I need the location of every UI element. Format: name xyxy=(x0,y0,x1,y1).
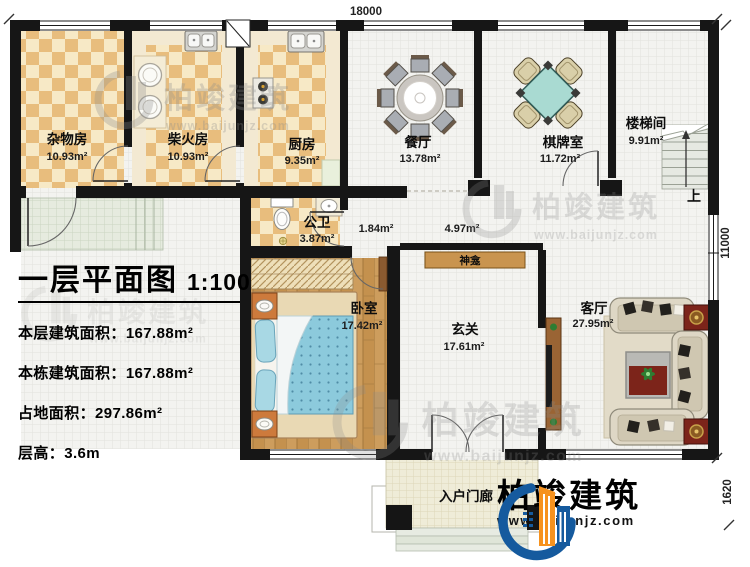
side-porch xyxy=(21,198,163,250)
window-top-6 xyxy=(628,20,700,31)
room-area-game: 11.72m² xyxy=(540,153,581,165)
room-area-foyer: 17.61m² xyxy=(444,341,485,353)
stat-floor-area: 本层建筑面积：167.88m² xyxy=(18,322,240,343)
dim-top-width: 18000 xyxy=(350,6,382,18)
cabinet-plant-top xyxy=(550,324,557,331)
nightstand-top xyxy=(252,293,277,319)
dim-right-height: 11000 xyxy=(720,227,732,258)
stat-floor-height: 层高：3.6m xyxy=(18,442,240,463)
stairs-up-label: 上 xyxy=(687,188,701,204)
title-block: 一层平面图 1:100 本层建筑面积：167.88m² 本栋建筑面积：167.8… xyxy=(18,255,240,463)
window-top-4 xyxy=(364,20,452,31)
room-label-living: 客厅 xyxy=(580,300,609,316)
mahjong-table-set xyxy=(511,55,584,130)
firewood-sink xyxy=(185,31,217,51)
plan-title-row: 一层平面图 1:100 xyxy=(18,255,240,303)
plan-scale: 1:100 xyxy=(187,269,251,296)
room-label-foyer: 玄关 xyxy=(452,321,479,337)
stat-building-area-label: 本栋建筑面积： xyxy=(18,365,126,382)
room-label-porch: 入户门廊 xyxy=(439,488,493,504)
window-top-3 xyxy=(268,20,336,31)
room-label-firewood: 柴火房 xyxy=(167,131,209,147)
sofa-right xyxy=(672,331,708,419)
living-room-set xyxy=(604,298,709,445)
shrine-label: 神龛 xyxy=(460,254,481,267)
stat-floor-area-value: 167.88m² xyxy=(126,325,193,342)
staircase xyxy=(662,124,708,189)
tv xyxy=(546,345,552,407)
logo-dot-column xyxy=(523,512,533,527)
room-label-stairwell: 楼梯间 xyxy=(626,115,667,131)
room-label-bedroom: 卧室 xyxy=(351,300,378,316)
floor-plan-image: 柏竣建筑 www.baijunjz.com xyxy=(0,0,750,567)
window-top-1 xyxy=(40,20,110,31)
window-right-hall xyxy=(708,215,719,300)
side-table-top xyxy=(684,305,709,330)
passage-area-small: 1.84m² xyxy=(359,223,394,235)
stat-floor-height-value: 3.6m xyxy=(64,445,100,462)
plan-title: 一层平面图 xyxy=(18,255,178,299)
bathroom-sink xyxy=(316,196,342,216)
window-bottom-living xyxy=(566,449,682,460)
logo-tower-orange xyxy=(539,486,555,546)
wardrobe xyxy=(251,259,353,289)
room-area-stairwell: 9.91m² xyxy=(629,135,664,147)
sofa-top xyxy=(610,298,694,333)
stat-floor-height-label: 层高： xyxy=(18,445,64,462)
window-top-5 xyxy=(498,20,584,31)
logo-tower-blue xyxy=(557,506,570,546)
stat-building-area: 本栋建筑面积：167.88m² xyxy=(18,362,240,383)
room-label-game: 棋牌室 xyxy=(543,134,584,150)
stat-building-area-value: 167.88m² xyxy=(126,365,193,382)
nightstand-bottom xyxy=(252,411,277,437)
room-area-storage: 10.93m² xyxy=(47,151,88,163)
room-label-kitchen: 厨房 xyxy=(289,136,316,152)
room-label-storage: 杂物房 xyxy=(47,131,88,147)
room-area-bedroom: 17.42m² xyxy=(342,320,383,332)
brand-logo-icon xyxy=(497,479,589,561)
kitchen-sink xyxy=(288,31,324,52)
floor-drain xyxy=(279,237,286,244)
dining-table-center xyxy=(415,93,425,103)
stat-floor-area-label: 本层建筑面积： xyxy=(18,325,126,342)
brand-logo-block: 柏竣建筑 www.baijunjz.com xyxy=(497,479,641,528)
chimney-flue xyxy=(226,20,250,47)
side-table-bottom xyxy=(684,419,709,444)
room-label-bathroom: 公卫 xyxy=(304,215,331,230)
floor-storage-room xyxy=(21,31,124,188)
kitchen-counter xyxy=(322,160,340,186)
dining-table-set xyxy=(377,55,463,141)
room-area-kitchen: 9.35m² xyxy=(285,155,320,167)
stat-footprint-area-label: 占地面积： xyxy=(18,405,95,422)
stat-footprint-area: 占地面积：297.86m² xyxy=(18,402,240,423)
bed-pillow-1 xyxy=(255,320,276,363)
room-area-firewood: 10.93m² xyxy=(168,151,209,163)
room-area-bathroom: 3.87m² xyxy=(300,233,335,245)
coffee-table xyxy=(626,352,670,398)
room-area-dining: 13.78m² xyxy=(400,153,441,165)
room-area-living: 27.95m² xyxy=(573,318,614,330)
bed-pillow-2 xyxy=(255,370,276,413)
stat-footprint-area-value: 297.86m² xyxy=(95,405,162,422)
room-label-dining: 餐厅 xyxy=(404,134,432,150)
sofa-bottom xyxy=(610,409,694,445)
dim-porch-depth: 1620 xyxy=(722,479,734,505)
porch-column-left xyxy=(386,505,412,530)
window-top-2 xyxy=(150,20,222,31)
